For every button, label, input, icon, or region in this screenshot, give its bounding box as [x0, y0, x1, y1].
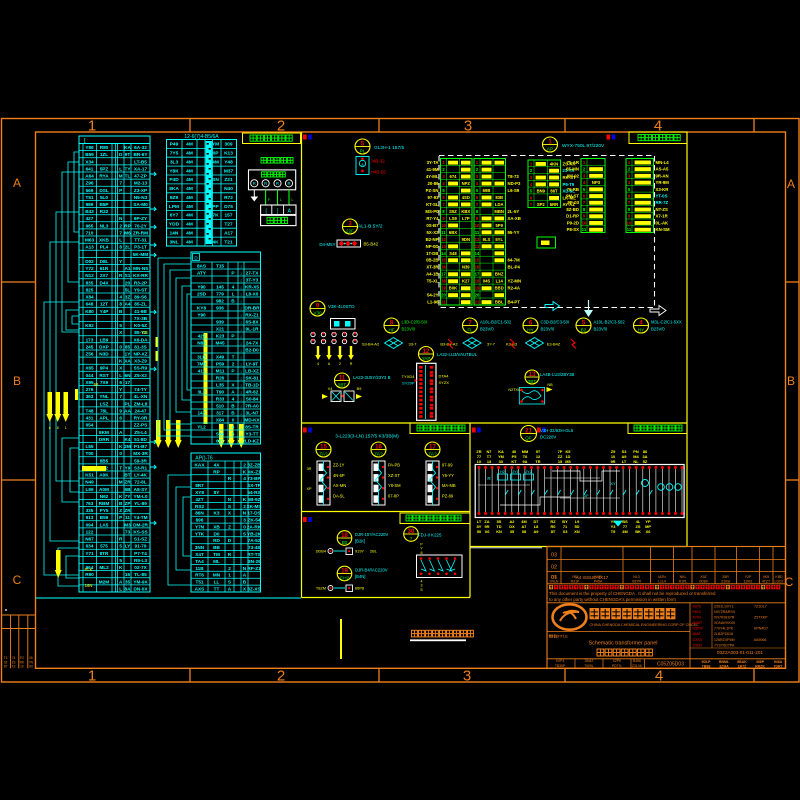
svg-text:3ZMA: 3ZMA [719, 665, 729, 669]
svg-text:S1-SZ: S1-SZ [134, 537, 147, 542]
svg-text:P: P [231, 369, 234, 374]
svg-text:575: 575 [100, 544, 108, 549]
svg-text:B: B [119, 309, 123, 314]
svg-text:74: 74 [12, 656, 16, 660]
svg-text:T00: T00 [85, 451, 93, 456]
svg-text:10: 10 [627, 220, 632, 225]
svg-text:411: 411 [198, 369, 206, 374]
svg-text:S076: S076 [693, 605, 701, 609]
svg-text:L7P: L7P [462, 216, 470, 221]
svg-text:157: 157 [224, 213, 232, 219]
svg-text:DA-5L: DA-5L [333, 493, 345, 498]
svg-text:8Y: 8Y [214, 490, 221, 495]
svg-text:A10L-B2/C3-502: A10L-B2/C3-502 [594, 320, 626, 325]
svg-text:23S1LSXY1: 23S1LSXY1 [714, 605, 734, 609]
svg-text:Y71: Y71 [85, 551, 94, 556]
svg-text:2: 2 [277, 668, 285, 685]
svg-text:APL: APL [99, 416, 109, 421]
svg-text:QF: QF [525, 436, 532, 441]
svg-text:D4X: D4X [99, 280, 109, 285]
svg-text:HF: HF [388, 328, 394, 333]
svg-text:X6YR: X6YR [632, 580, 642, 584]
svg-text:JY2: JY2 [525, 470, 532, 474]
svg-text:59-3R: 59-3R [134, 458, 147, 463]
svg-text:4: 4 [232, 397, 235, 402]
svg-text:↓: ↓ [240, 404, 242, 409]
svg-text:R: R [119, 537, 123, 542]
svg-text:M6: M6 [124, 231, 131, 236]
svg-text:LY-4K: LY-4K [134, 473, 147, 478]
svg-text:70-2Y: 70-2Y [134, 223, 147, 228]
svg-text:9P-03: 9P-03 [568, 200, 580, 205]
svg-text:MN-N5: MN-N5 [133, 266, 148, 271]
svg-text:4: 4 [317, 362, 319, 366]
svg-text:LY: LY [125, 544, 131, 549]
svg-text:KT-SL: KT-SL [426, 202, 439, 207]
svg-text:AP()-76: AP()-76 [195, 456, 212, 462]
svg-text:XZPK: XZPK [613, 659, 623, 663]
svg-text:ZR: ZR [124, 508, 131, 513]
svg-text:3R: 3R [307, 467, 312, 471]
svg-text:BNML: BNML [719, 660, 730, 664]
svg-text:A17: A17 [224, 230, 233, 236]
svg-text:779: 779 [216, 292, 224, 297]
svg-text:8R7: 8R7 [195, 483, 204, 488]
svg-text:N40: N40 [224, 186, 233, 192]
svg-text:SA-M0: SA-M0 [133, 202, 148, 207]
svg-text:73-BP: 73-BP [247, 476, 260, 481]
svg-text:835: 835 [86, 280, 94, 285]
svg-text:989: 989 [86, 202, 94, 207]
svg-text:11: 11 [441, 230, 446, 235]
svg-text:R7-Y4: R7-Y4 [426, 216, 439, 221]
svg-text:FL: FL [467, 328, 473, 333]
svg-text:91-79: 91-79 [135, 544, 147, 549]
svg-text:DN-0X: DN-0X [133, 586, 148, 591]
svg-text:3L2: 3L2 [197, 390, 205, 395]
svg-text:P9-2D: P9-2D [567, 220, 579, 225]
svg-text:7Y: 7Y [125, 494, 132, 499]
svg-text:LD-KZ: LD-KZ [245, 439, 259, 444]
svg-text:A13: A13 [85, 245, 94, 250]
svg-text:PL4: PL4 [100, 245, 109, 250]
svg-text:X3-Z9: X3-Z9 [134, 359, 147, 364]
svg-text:TA?: TA? [428, 452, 437, 457]
svg-text:408P: 408P [756, 660, 765, 664]
svg-text:73-48: 73-48 [248, 545, 260, 550]
svg-text:50: 50 [477, 529, 481, 534]
svg-text:A10L-B2/C1-502: A10L-B2/C1-502 [480, 320, 512, 325]
svg-text:A4 ISSUE 4X17: A4 ISSUE 4X17 [576, 575, 609, 580]
svg-text:P49: P49 [170, 142, 179, 148]
svg-text:9R-AN: 9R-AN [656, 173, 669, 178]
svg-text:1: 1 [88, 668, 96, 685]
svg-text:12M1: 12M1 [744, 580, 753, 584]
svg-text:K51: K51 [85, 473, 94, 478]
svg-text:TA4: TA4 [195, 559, 204, 564]
svg-text:AS-A5: AS-A5 [656, 167, 670, 172]
svg-text:KT: KT [511, 459, 517, 464]
svg-text:4ZT: 4ZT [195, 497, 203, 502]
svg-text:P614: P614 [693, 610, 701, 614]
svg-text:2SD: 2SD [197, 292, 207, 297]
svg-text:B: B [787, 374, 795, 388]
svg-text:1X: 1X [477, 459, 482, 464]
svg-text:04S: 04S [483, 279, 491, 284]
svg-text:21: 21 [441, 300, 446, 305]
svg-text:9L-1R: 9L-1R [245, 327, 259, 332]
svg-text:16: 16 [375, 444, 382, 450]
svg-text:9: 9 [119, 409, 122, 414]
svg-text:2: 2 [243, 462, 246, 467]
svg-text:P1-B7: P1-B7 [134, 444, 148, 449]
svg-text:7: 7 [119, 231, 122, 236]
svg-text:35: 35 [125, 579, 131, 584]
svg-text:634: 634 [86, 544, 94, 549]
svg-text:DJR-15?/AC220V: DJR-15?/AC220V [355, 532, 388, 537]
svg-text:83B: 83B [495, 195, 503, 200]
svg-text:L6-S9: L6-S9 [508, 188, 520, 193]
svg-text:↓: ↓ [240, 306, 242, 311]
svg-text:M2N: M2N [658, 575, 666, 579]
svg-text:85-ZL: 85-ZL [134, 302, 147, 307]
svg-text:FDJ-II K225: FDJ-II K225 [418, 533, 442, 538]
svg-text:TB-1D: TB-1D [245, 383, 259, 388]
svg-text:89-S6: 89-S6 [134, 295, 147, 300]
svg-text:13: 13 [441, 244, 446, 249]
svg-text:54-RX: 54-RX [247, 490, 261, 495]
svg-text:YDD: YDD [169, 222, 180, 228]
svg-text:10: 10 [20, 665, 24, 669]
svg-text:L1-96: L1-96 [427, 300, 439, 305]
svg-text:2M: 2M [124, 444, 131, 449]
svg-text:9M-ST: 9M-ST [566, 194, 579, 199]
svg-text:7: 7 [119, 181, 122, 186]
svg-text:9DN: 9DN [462, 237, 470, 242]
svg-text:K: K [119, 565, 123, 570]
svg-text:8Z-BD: 8Z-BD [566, 207, 579, 212]
svg-text:R80: R80 [100, 145, 109, 150]
svg-text:S: S [243, 531, 246, 536]
svg-text:Y48: Y48 [224, 159, 233, 165]
svg-text:12: 12 [423, 349, 430, 355]
svg-text:1Y: 1Y [125, 352, 132, 357]
svg-text:6BAK: 6BAK [737, 660, 747, 664]
svg-text:8: 8 [49, 426, 51, 430]
svg-text:6BX: 6BX [449, 230, 457, 235]
svg-text:XA-17: XA-17 [134, 166, 148, 171]
svg-text:L35: L35 [216, 383, 224, 388]
svg-text:BT: BT [124, 473, 130, 478]
svg-text:↓: ↓ [240, 327, 242, 332]
svg-text:Y86: Y86 [85, 145, 94, 150]
svg-text:N97ZRARSX: N97ZRARSX [714, 610, 736, 614]
svg-text:9Z9: 9Z9 [170, 195, 179, 201]
svg-text:Y3-TT: Y3-TT [245, 432, 258, 437]
svg-text:65-MN: 65-MN [566, 167, 579, 172]
svg-text:2: 2 [228, 566, 231, 571]
svg-text:L55: L55 [85, 444, 93, 449]
svg-text:XDNAYKK49: XDNAYKK49 [714, 621, 735, 625]
svg-text:KR-X5: KR-X5 [245, 285, 259, 290]
svg-text:0: 0 [232, 418, 235, 423]
svg-text:L: L [232, 292, 235, 297]
svg-text:ATY: ATY [197, 271, 207, 276]
svg-text:↓: ↓ [240, 369, 242, 374]
svg-text:8KA: 8KA [169, 186, 179, 192]
svg-text:HY: HY [638, 328, 644, 333]
svg-text:B2-D0: B2-D0 [245, 348, 259, 353]
svg-text:LT: LT [622, 459, 627, 464]
svg-text:5L: 5L [125, 287, 131, 292]
svg-text:8AS: 8AS [197, 264, 206, 269]
svg-text:5K-MM: 5K-MM [133, 252, 148, 257]
svg-text:L14: L14 [496, 279, 504, 284]
svg-text:TR: TR [535, 459, 540, 464]
svg-text:XT-3R: XT-3R [426, 265, 439, 270]
svg-text:7X-3B: 7X-3B [134, 316, 148, 321]
svg-text:K80: K80 [85, 309, 94, 314]
svg-text:C3D-B2/C3-50I: C3D-B2/C3-50I [541, 320, 570, 325]
svg-text:276: 276 [86, 387, 94, 392]
svg-text:15: 15 [441, 258, 446, 263]
svg-text:22F: 22F [346, 229, 354, 234]
svg-text:TA?: TA? [374, 452, 383, 457]
svg-text:YM-L0: YM-L0 [133, 494, 147, 499]
svg-text:A64: A64 [85, 174, 94, 179]
svg-text:N62: N62 [100, 494, 109, 499]
svg-text:BK: BK [635, 529, 641, 534]
svg-text:N39: N39 [462, 265, 470, 270]
svg-text:↓: ↓ [240, 264, 242, 269]
svg-text:RYA: RYA [99, 174, 109, 179]
svg-text:R26: R26 [216, 376, 225, 381]
svg-text:B0K: B0K [449, 286, 457, 291]
svg-text:R: R [264, 181, 267, 186]
svg-text:H2: H2 [500, 470, 505, 474]
svg-text:N3D: N3D [99, 352, 109, 357]
svg-text:C05Z05D03: C05Z05D03 [657, 661, 684, 667]
svg-text:PZ-SN: PZ-SN [426, 188, 439, 193]
svg-text:5PZ: 5PZ [100, 166, 109, 171]
svg-text:16: 16 [441, 265, 446, 270]
svg-text:335: 335 [86, 508, 94, 513]
svg-text:936: 936 [216, 306, 224, 311]
svg-text:30: 30 [408, 529, 415, 535]
svg-text:309: 309 [224, 142, 232, 148]
svg-text:P45A: P45A [594, 580, 603, 584]
svg-text:21: 21 [475, 300, 480, 305]
svg-text:A4: A4 [125, 302, 131, 307]
svg-text:429: 429 [198, 334, 206, 339]
svg-text:BN9: BN9 [537, 189, 546, 194]
svg-text:03: 03 [551, 553, 557, 559]
svg-text:↓: ↓ [240, 411, 242, 416]
svg-text:1R7Z: 1R7Z [738, 665, 747, 669]
svg-text:ND-P3: ND-P3 [508, 181, 522, 186]
svg-text:M1BT: M1BT [693, 621, 703, 625]
svg-text:21KB: 21KB [721, 580, 730, 584]
svg-text:044: 044 [86, 373, 94, 378]
svg-text:4X: 4X [214, 462, 221, 467]
svg-text:RD: RD [213, 538, 220, 543]
svg-text:SX-TP: SX-TP [247, 483, 261, 488]
svg-text:RS2: RS2 [195, 504, 205, 509]
svg-text:11: 11 [125, 515, 130, 520]
svg-text:A1: A1 [125, 266, 131, 271]
svg-text:L: L [119, 373, 122, 378]
svg-text:2L-5Y: 2L-5Y [508, 209, 520, 214]
svg-text:A: A [13, 176, 21, 190]
svg-text:L: L [119, 238, 122, 243]
svg-text:DRR: DRR [99, 437, 110, 442]
svg-text:427: 427 [86, 216, 94, 221]
svg-text:3T-Y3: 3T-Y3 [246, 278, 259, 283]
svg-text:D5PM: D5PM [693, 627, 703, 631]
svg-text:YB2: YB2 [572, 575, 579, 579]
svg-text:T51: T51 [85, 195, 93, 200]
svg-text:CH2: CH2 [340, 576, 350, 581]
svg-text:P4D: P4D [169, 177, 179, 183]
svg-text:4TZT: 4TZT [762, 580, 771, 584]
svg-text:B5P: B5P [99, 202, 108, 207]
svg-text:19: 19 [441, 286, 446, 291]
svg-text:ML2: ML2 [99, 565, 109, 570]
svg-text:KBD: KBD [775, 575, 783, 579]
svg-text:X3-KR: X3-KR [656, 187, 670, 192]
svg-text:696: 696 [196, 518, 204, 523]
svg-text:7Y5: 7Y5 [170, 151, 179, 157]
svg-text:16: 16 [475, 265, 480, 270]
svg-text:7K: 7K [212, 213, 219, 219]
svg-text:NT-ZS: NT-ZS [656, 207, 669, 212]
svg-text:15: 15 [320, 444, 327, 450]
svg-text:ML: ML [213, 559, 220, 564]
svg-text:ZZ-1Y: ZZ-1Y [333, 463, 345, 468]
svg-text:51-8D: 51-8D [134, 437, 147, 442]
svg-text:0: 0 [119, 451, 122, 456]
svg-text:NL3: NL3 [633, 575, 639, 579]
svg-text:R72: R72 [224, 195, 233, 201]
svg-text:4K: 4K [212, 239, 219, 245]
svg-text:094: 094 [86, 522, 94, 527]
svg-text:ZR-RM: ZR-RM [133, 231, 148, 236]
svg-text:5RR: 5RR [550, 202, 558, 207]
svg-text:K: K [119, 494, 123, 499]
svg-text:2L: 2L [125, 245, 131, 250]
svg-text:XN7K981PR: XN7K981PR [714, 616, 735, 620]
svg-text:JY1: JY1 [512, 470, 519, 474]
svg-text:2: 2 [119, 223, 122, 228]
svg-text:KN: KN [496, 529, 502, 534]
svg-text:5L0: 5L0 [100, 195, 108, 200]
svg-text:Y7N: Y7N [195, 525, 205, 530]
svg-text:X7-1R: X7-1R [656, 214, 669, 219]
svg-text:33-7: 33-7 [408, 342, 417, 347]
svg-text:SP2: SP2 [537, 202, 546, 207]
svg-text:6: 6 [119, 416, 122, 421]
svg-text:7X9: 7X9 [100, 380, 109, 385]
svg-text:RT-TS: RT-TS [247, 552, 261, 557]
svg-text:8: 8 [119, 245, 122, 250]
svg-text:3X: 3X [499, 459, 504, 464]
svg-text:M2M: M2M [99, 579, 110, 584]
svg-text:9LS: 9LS [483, 237, 491, 242]
svg-text:8: 8 [57, 426, 59, 430]
svg-text:ZK-54: ZK-54 [247, 518, 260, 523]
svg-text:DXP: DXP [99, 344, 109, 349]
svg-text:6S-8X: 6S-8X [245, 320, 259, 325]
svg-text:363: 363 [86, 394, 94, 399]
svg-text:D1-RP: D1-RP [566, 214, 579, 219]
svg-text:↓: ↓ [240, 292, 242, 297]
svg-text:20: 20 [441, 293, 446, 298]
svg-text:4R-62: 4R-62 [246, 390, 259, 395]
svg-text:S0: S0 [29, 665, 33, 669]
svg-text:11: 11 [475, 230, 480, 235]
svg-text:AP: AP [547, 147, 553, 152]
svg-text:3: 3 [463, 668, 471, 685]
svg-text:K0-5Z: K0-5Z [134, 323, 147, 328]
svg-text:LA32-LU3/VAUTBUL: LA32-LU3/VAUTBUL [437, 352, 478, 357]
svg-text:7Z1DL7: 7Z1DL7 [754, 605, 767, 609]
svg-text:M63: M63 [85, 238, 95, 243]
svg-text:P2: P2 [20, 656, 24, 660]
svg-text:BBD: BBD [495, 286, 504, 291]
svg-text:LT-B5: LT-B5 [134, 159, 147, 164]
svg-text:8A: 8A [125, 586, 132, 591]
svg-text:26: 26 [29, 656, 33, 660]
svg-text:4: 4 [232, 425, 235, 430]
svg-text:X6: X6 [485, 529, 491, 534]
svg-text:DR-BR: DR-BR [244, 306, 260, 311]
svg-text:MN: MN [213, 573, 221, 578]
svg-text:17-DS: 17-DS [247, 511, 260, 516]
svg-text:A: A [361, 162, 364, 167]
svg-text:RT6: RT6 [195, 573, 204, 578]
svg-text:3L-N7: 3L-N7 [245, 411, 258, 416]
svg-text:3L3: 3L3 [170, 159, 179, 165]
svg-text:BB: BB [213, 545, 220, 550]
svg-text:X9Z: X9Z [700, 575, 707, 579]
svg-text:B23V/0: B23V/0 [541, 327, 555, 332]
svg-text:KX-RR: KX-RR [133, 273, 148, 278]
svg-text:Y9-ST: Y9-ST [134, 287, 147, 292]
svg-text:R31P: R31P [571, 580, 580, 584]
svg-text:B0: B0 [342, 540, 348, 545]
svg-text:4: 4 [655, 668, 663, 685]
svg-text:R3-2P: R3-2P [134, 280, 147, 285]
svg-text:P7-T4: P7-T4 [134, 551, 147, 556]
svg-text:ZP: ZP [125, 501, 131, 506]
svg-text:D0: D0 [214, 531, 220, 536]
svg-text:This document is the property: This document is the property of CHENGDA… [549, 591, 716, 596]
svg-text:TT-31: TT-31 [134, 238, 147, 243]
svg-text:64-7M: 64-7M [508, 258, 521, 263]
svg-text:YNL: YNL [99, 394, 109, 399]
svg-text:BNZ: BNZ [495, 272, 504, 277]
svg-text:3Y-TA: 3Y-TA [427, 160, 439, 165]
svg-text:T3: T3 [4, 656, 8, 660]
svg-text:68: 68 [94, 382, 99, 387]
svg-text:2NLN: 2NLN [550, 580, 559, 584]
svg-text:DDB4: DDB4 [316, 549, 327, 554]
svg-text:24-47: 24-47 [135, 409, 147, 414]
svg-text:X65: X65 [85, 366, 94, 371]
svg-text:97-99: 97-99 [442, 463, 453, 468]
svg-text:1T-DB: 1T-DB [426, 251, 438, 256]
svg-text:9K5: 9K5 [763, 575, 769, 579]
